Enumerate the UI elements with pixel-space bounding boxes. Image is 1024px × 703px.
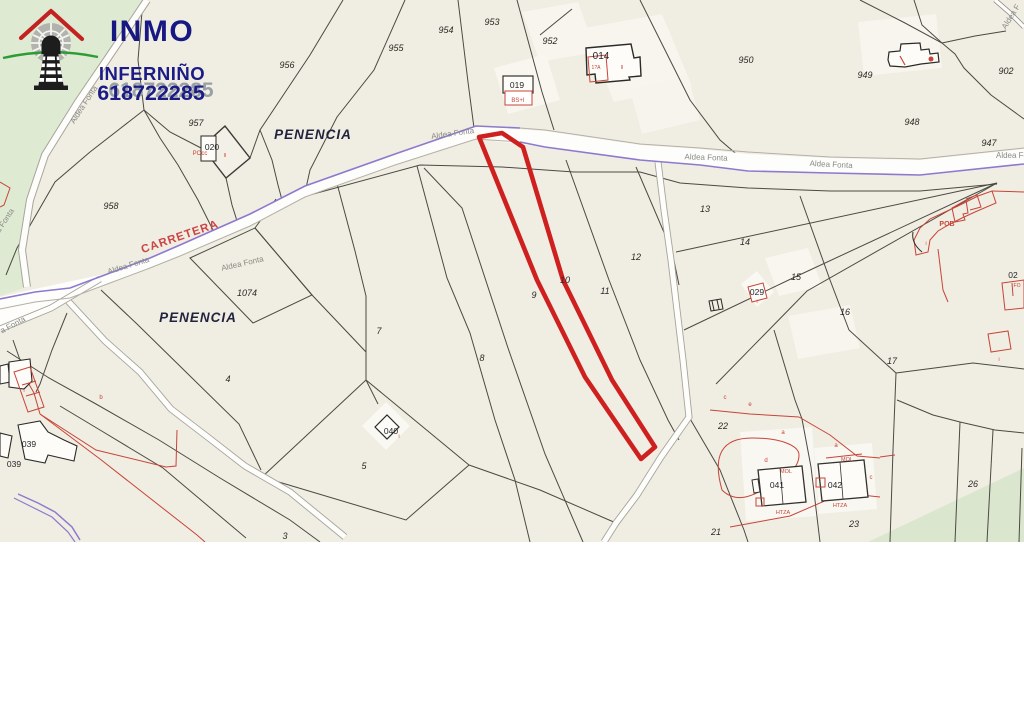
svg-text:954: 954: [438, 25, 453, 35]
svg-text:956: 956: [279, 60, 294, 70]
svg-text:MOL: MOL: [841, 457, 853, 463]
svg-text:23: 23: [848, 519, 859, 529]
svg-text:9: 9: [531, 290, 536, 300]
svg-text:21: 21: [710, 527, 721, 537]
svg-text:Aldea Fonta: Aldea Fonta: [684, 152, 728, 163]
svg-text:PENENCIA: PENENCIA: [274, 127, 352, 142]
svg-text:13: 13: [700, 204, 710, 214]
svg-text:1?A: 1?A: [592, 65, 602, 71]
svg-text:014: 014: [593, 51, 610, 62]
svg-text:042: 042: [828, 480, 842, 490]
svg-text:948: 948: [904, 117, 919, 127]
svg-text:3: 3: [282, 531, 287, 541]
svg-text:039: 039: [22, 439, 36, 449]
svg-text:15: 15: [791, 272, 802, 282]
svg-text:950: 950: [738, 55, 753, 65]
svg-text:PENENCIA: PENENCIA: [159, 310, 237, 325]
svg-text:FO: FO: [1014, 283, 1021, 289]
svg-text:i: i: [398, 434, 399, 440]
svg-text:II: II: [224, 153, 227, 159]
svg-text:INMO: INMO: [110, 15, 194, 48]
svg-text:041: 041: [770, 480, 784, 490]
svg-text:040: 040: [384, 426, 398, 436]
svg-text:II: II: [621, 65, 624, 71]
svg-text:Aldea Fo: Aldea Fo: [996, 151, 1024, 160]
svg-text:947: 947: [981, 138, 997, 148]
svg-text:i: i: [23, 388, 24, 394]
svg-text:BS+I: BS+I: [511, 98, 525, 104]
svg-text:949: 949: [857, 70, 872, 80]
svg-text:952: 952: [542, 36, 557, 46]
svg-text:16: 16: [840, 307, 850, 317]
svg-text:i: i: [925, 241, 926, 247]
svg-text:1074: 1074: [237, 288, 257, 298]
svg-text:02: 02: [1008, 270, 1018, 280]
svg-text:953: 953: [484, 17, 499, 27]
svg-text:HTZA: HTZA: [776, 510, 791, 516]
svg-text:POcc: POcc: [193, 151, 208, 157]
svg-text:4: 4: [225, 374, 230, 384]
svg-text:12: 12: [631, 252, 641, 262]
svg-text:955: 955: [388, 43, 404, 53]
svg-text:POB: POB: [939, 221, 954, 228]
svg-text:957: 957: [188, 118, 204, 128]
svg-text:10: 10: [560, 275, 570, 285]
svg-text:c: c: [724, 395, 727, 401]
svg-text:029: 029: [750, 287, 764, 297]
svg-text:d: d: [764, 458, 767, 464]
svg-text:c: c: [870, 475, 873, 481]
svg-text:14: 14: [740, 237, 750, 247]
svg-text:11: 11: [600, 286, 609, 296]
svg-text:902: 902: [998, 66, 1013, 76]
svg-text:i: i: [756, 299, 757, 305]
svg-text:22: 22: [717, 421, 728, 431]
svg-text:MOL: MOL: [780, 469, 792, 475]
svg-text:958: 958: [103, 201, 118, 211]
svg-text:HTZA: HTZA: [833, 503, 848, 509]
svg-text:26: 26: [967, 479, 978, 489]
svg-text:618722285: 618722285: [97, 81, 205, 105]
svg-text:019: 019: [510, 80, 524, 90]
svg-text:17: 17: [887, 356, 898, 366]
svg-text:i: i: [998, 357, 999, 363]
svg-text:8: 8: [479, 353, 484, 363]
svg-text:039: 039: [7, 459, 21, 469]
